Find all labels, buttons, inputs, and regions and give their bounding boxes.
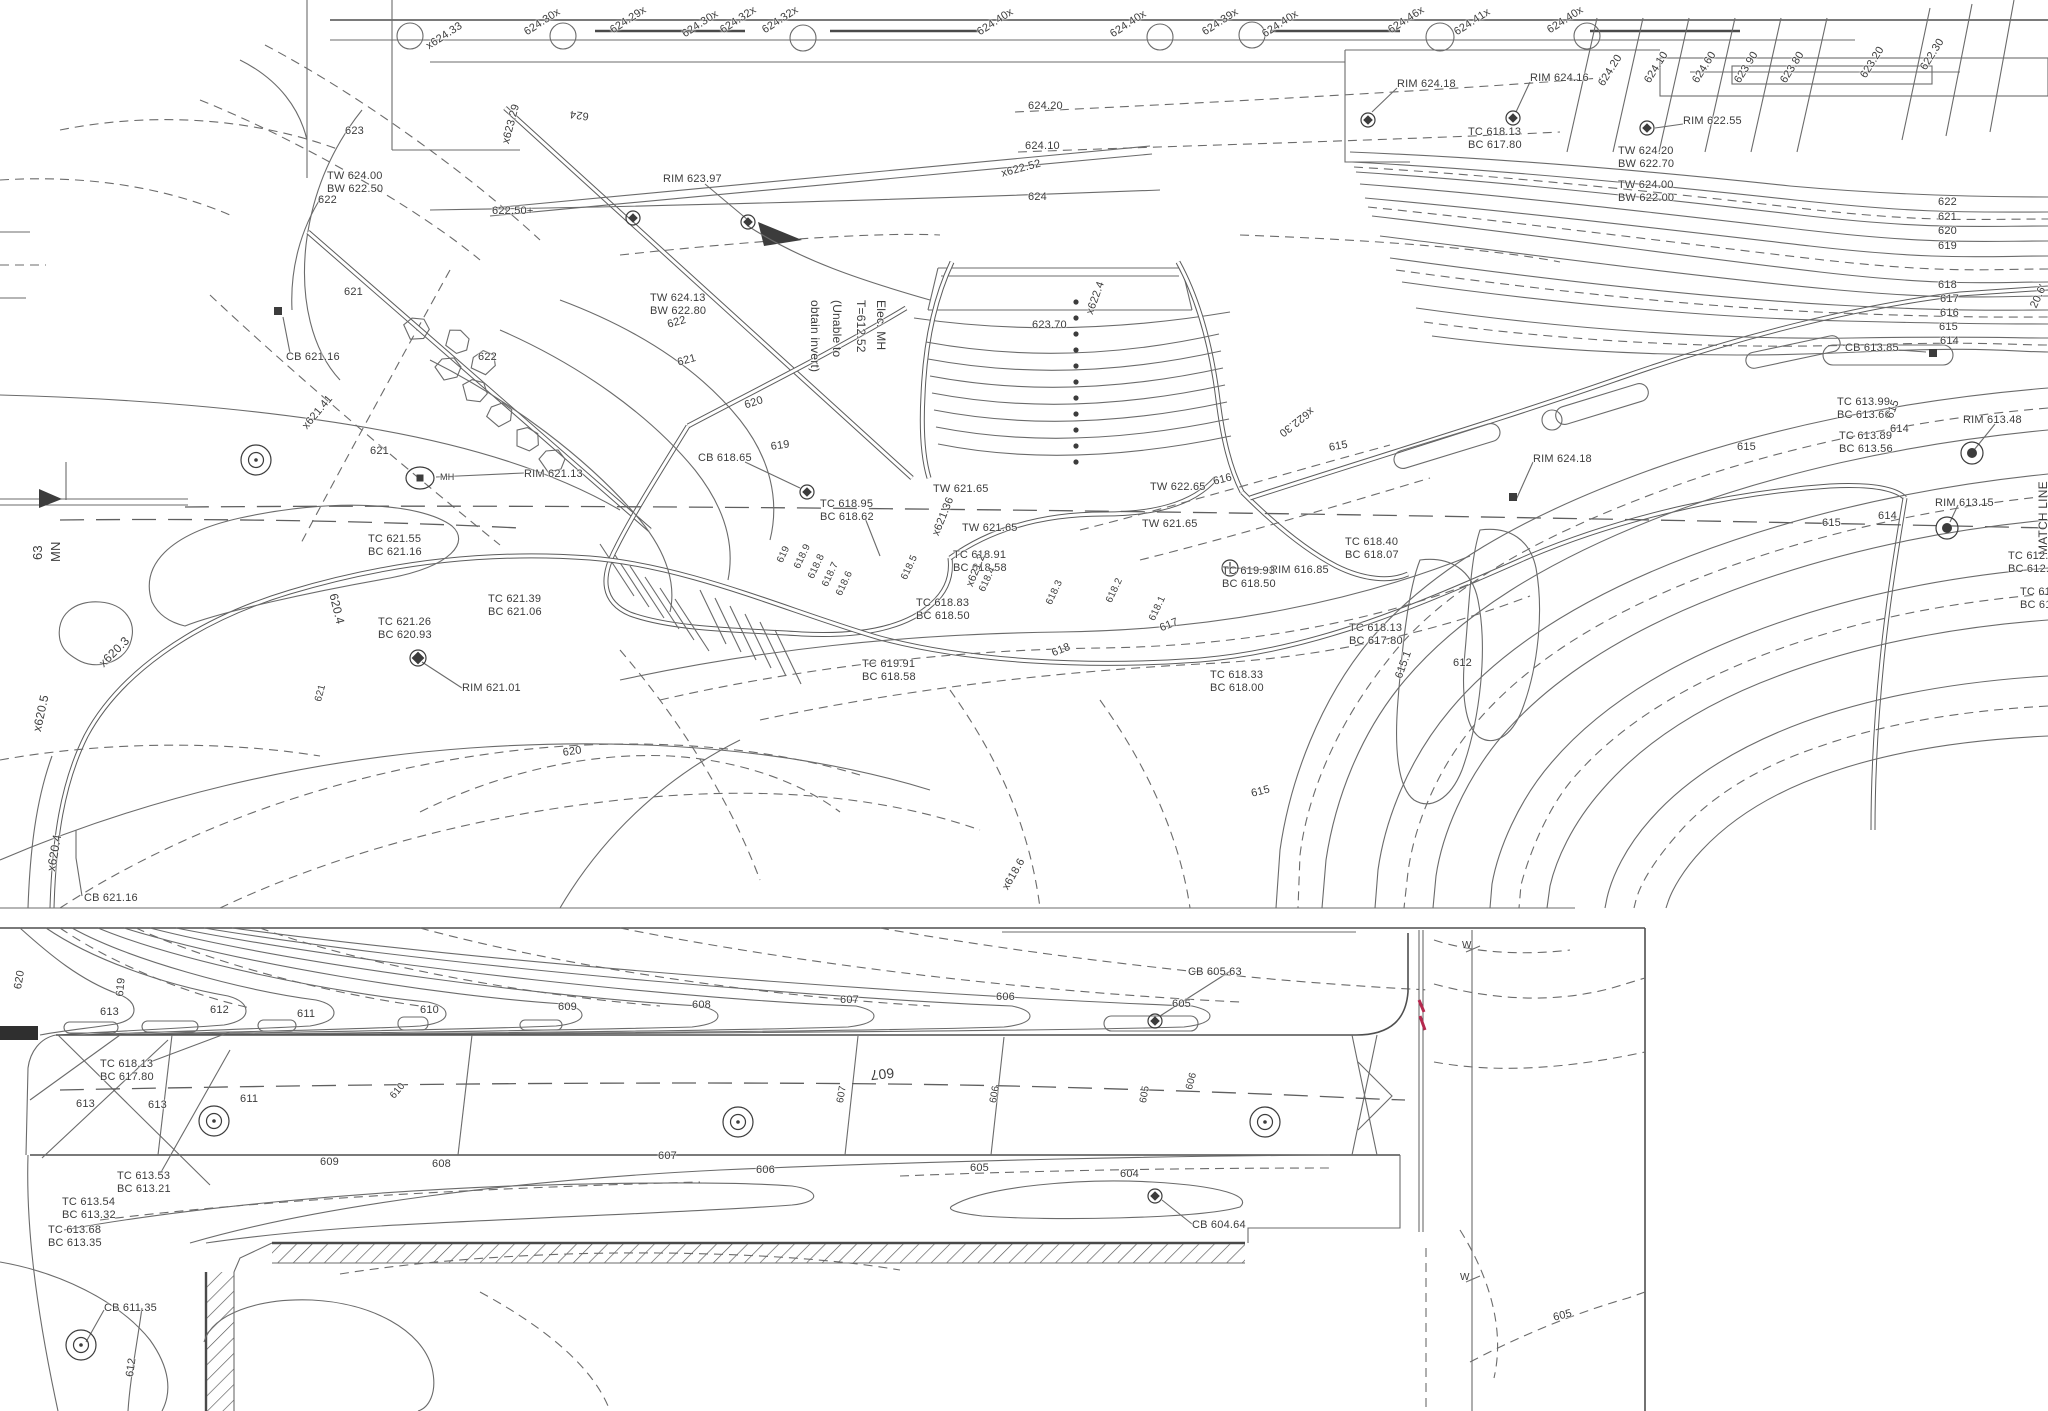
elevation-label: TC 621.55 BC 621.16 xyxy=(368,533,422,560)
target-symbol-icon xyxy=(1250,1107,1280,1137)
elevation-label: TW 624.20 BW 622.70 xyxy=(1618,145,1674,172)
elevation-label: TC 619.93 BC 618.50 xyxy=(1222,565,1276,592)
elevation-label: 616 xyxy=(1940,307,1959,320)
elevation-label: TC 618.83 BC 618.50 xyxy=(916,597,970,624)
elevation-label: 621 xyxy=(344,286,363,299)
elevation-label: TC 621.39 BC 621.06 xyxy=(488,593,542,620)
cb-symbol-icon xyxy=(1148,1189,1162,1203)
elevation-label: CB 613.85 xyxy=(1845,342,1899,355)
elevation-label: RIM 621.13 xyxy=(524,468,583,481)
elevation-label: TC 618.13 BC 617.80 xyxy=(1349,622,1403,649)
elevation-label: 613 xyxy=(148,1099,167,1112)
elevation-label: obtain invert) xyxy=(807,300,822,372)
elevation-label: CB 621.16 xyxy=(286,351,340,364)
elevation-label: 611 xyxy=(240,1093,258,1106)
cb-symbol-icon xyxy=(800,485,814,499)
elevation-label: TC 613.99 BC 613.66 xyxy=(1837,396,1891,423)
elevation-label: 615 xyxy=(1939,321,1958,334)
elevation-label: TC 618.95 BC 618.62 xyxy=(820,498,874,525)
elevation-label: TC 612.5 BC 612.5 xyxy=(2008,550,2048,577)
elevation-label: 609 xyxy=(558,1001,577,1014)
elevation-label: MH xyxy=(440,472,454,483)
elevation-label: RIM 623.97 xyxy=(663,173,722,186)
elevation-label: 604 xyxy=(1120,1168,1139,1181)
elevation-label: 623 xyxy=(345,125,364,138)
elevation-label: 613 xyxy=(76,1098,95,1111)
elevation-label: 611 xyxy=(297,1008,315,1021)
elevation-label: T=612.52 xyxy=(853,300,868,353)
elevation-label: CB 605.63 xyxy=(1188,966,1242,979)
elevation-label: 620 xyxy=(1938,225,1957,238)
cb-symbol-icon xyxy=(741,215,755,229)
elevation-label: TC 613.53 BC 613.21 xyxy=(117,1170,171,1197)
cb-symbol-icon xyxy=(1506,111,1520,125)
elevation-label: RIM 622.55 xyxy=(1683,115,1742,128)
bottom-panel-linework xyxy=(0,928,1645,1411)
elevation-label: 621 xyxy=(370,445,389,458)
elevation-label: TW 622.65 xyxy=(1150,481,1206,494)
dia-symbol-icon xyxy=(410,650,426,666)
elevation-label: CB 621.16 xyxy=(84,892,138,905)
elevation-label: 624.10 xyxy=(1025,140,1060,153)
mh-symbol-icon xyxy=(406,467,434,489)
elevation-label: TC 613.89 BC 613.56 xyxy=(1839,430,1893,457)
elevation-label: 617 xyxy=(1940,293,1959,306)
elevation-label: 621 xyxy=(1938,211,1957,224)
sq-symbol-icon xyxy=(1929,349,1937,357)
elevation-label: MATCH LINE xyxy=(2036,481,2048,555)
elevation-label: TC 612 BC 612 xyxy=(2020,586,2048,613)
elevation-label: 612 xyxy=(210,1004,229,1017)
elevation-label: 605 xyxy=(1172,998,1191,1011)
elevation-label: 609 xyxy=(320,1156,339,1169)
elevation-label: 613 xyxy=(100,1006,119,1019)
elevation-label: TC 613.68 BC 613.35 xyxy=(48,1224,102,1251)
cb-symbol-icon xyxy=(1361,113,1375,127)
elevation-label: RIM 624.18 xyxy=(1533,453,1592,466)
cb-symbol-icon xyxy=(1640,121,1654,135)
elevation-label: 615 xyxy=(1737,441,1756,454)
elevation-label: 614 xyxy=(1890,423,1909,436)
target-symbol-icon xyxy=(66,1330,96,1360)
target-symbol-icon xyxy=(723,1107,753,1137)
elevation-label: CB 611.35 xyxy=(104,1302,157,1315)
target2-symbol-icon xyxy=(1961,442,1983,464)
elevation-label: RIM 613.15 xyxy=(1935,497,1994,510)
elevation-label: 623.70 xyxy=(1032,319,1067,332)
elevation-label: CB 618.65 xyxy=(698,452,752,465)
elevation-label: 619 xyxy=(770,438,791,454)
sq-symbol-icon xyxy=(274,307,282,315)
elevation-label: 612 xyxy=(124,1357,140,1378)
elevation-label: 614 xyxy=(1878,510,1897,523)
plan-linework xyxy=(0,0,2048,1411)
elevation-label: 610 xyxy=(420,1004,439,1017)
elevation-label: Elec. MH xyxy=(873,300,888,350)
elevation-label: 619 xyxy=(114,977,129,997)
elevation-label: W xyxy=(1460,1272,1470,1284)
target-symbol-icon xyxy=(199,1106,229,1136)
elevation-label: TC 618.13 BC 617.80 xyxy=(1468,126,1522,153)
elevation-label: 63 xyxy=(30,545,46,560)
elevation-label: TW 621.65 xyxy=(962,522,1018,535)
elevation-label: CB 604.64 xyxy=(1192,1219,1246,1232)
elevation-label: 608 xyxy=(692,999,711,1012)
elevation-label: 607 xyxy=(869,1064,895,1083)
elevation-label: 622 xyxy=(478,351,497,364)
elevation-label: 614 xyxy=(1940,335,1959,348)
elevation-label: 605 xyxy=(970,1162,989,1175)
elevation-label: RIM 613.48 xyxy=(1963,414,2022,427)
elevation-label: TC 613.54 BC 613.32 xyxy=(62,1196,116,1223)
elevation-label: 624 xyxy=(1028,191,1047,204)
sq-symbol-icon xyxy=(1509,493,1517,501)
elevation-label: TW 624.00 BW 622.00 xyxy=(1618,179,1674,206)
elevation-label: TW 621.65 xyxy=(933,483,989,496)
elevation-label: 608 xyxy=(432,1158,451,1171)
elevation-label: RIM 616.85 xyxy=(1270,564,1329,577)
elevation-label: RIM 624.16 xyxy=(1530,72,1589,85)
elevation-label: (Unable to xyxy=(829,300,844,357)
elevation-label: 622.50+ xyxy=(492,205,533,218)
elevation-label: 624.20 xyxy=(1028,100,1063,113)
elevation-label: W xyxy=(1462,940,1472,952)
elevation-label: MN xyxy=(48,541,64,562)
elevation-label: 618 xyxy=(1938,279,1957,292)
elevation-label: TW 624.00 BW 622.50 xyxy=(327,170,383,197)
elevation-label: 620 xyxy=(562,744,583,760)
elevation-label: 612 xyxy=(1453,657,1472,670)
elevation-label: 607 xyxy=(658,1150,677,1163)
elevation-label: TC 618.40 BC 618.07 xyxy=(1345,536,1399,563)
elevation-label: 607 xyxy=(840,994,859,1007)
elevation-label: 624 xyxy=(569,106,589,122)
elevation-label: 622 xyxy=(318,194,337,207)
elevation-label: TC 618.13 BC 617.80 xyxy=(100,1058,154,1085)
elevation-label: TW 621.65 xyxy=(1142,518,1198,531)
elevation-label: RIM 624.18 xyxy=(1397,78,1456,91)
elevation-label: RIM 621.01 xyxy=(462,682,521,695)
elevation-label: TC 621.26 BC 620.93 xyxy=(378,616,432,643)
elevation-label: 606 xyxy=(996,991,1015,1004)
elevation-label: TC 619.91 BC 618.58 xyxy=(862,658,916,685)
elevation-label: 619 xyxy=(1938,240,1957,253)
site-plan-canvas: x624.33624.30x624.29x624.30x624.32x624.3… xyxy=(0,0,2048,1411)
target-symbol-icon xyxy=(241,445,271,475)
elevation-label: TC 618.33 BC 618.00 xyxy=(1210,669,1264,696)
elevation-label: 615 xyxy=(1822,517,1841,530)
target2-symbol-icon xyxy=(1936,517,1958,539)
elevation-label: 622 xyxy=(1938,196,1957,209)
elevation-label: 606 xyxy=(756,1164,775,1177)
